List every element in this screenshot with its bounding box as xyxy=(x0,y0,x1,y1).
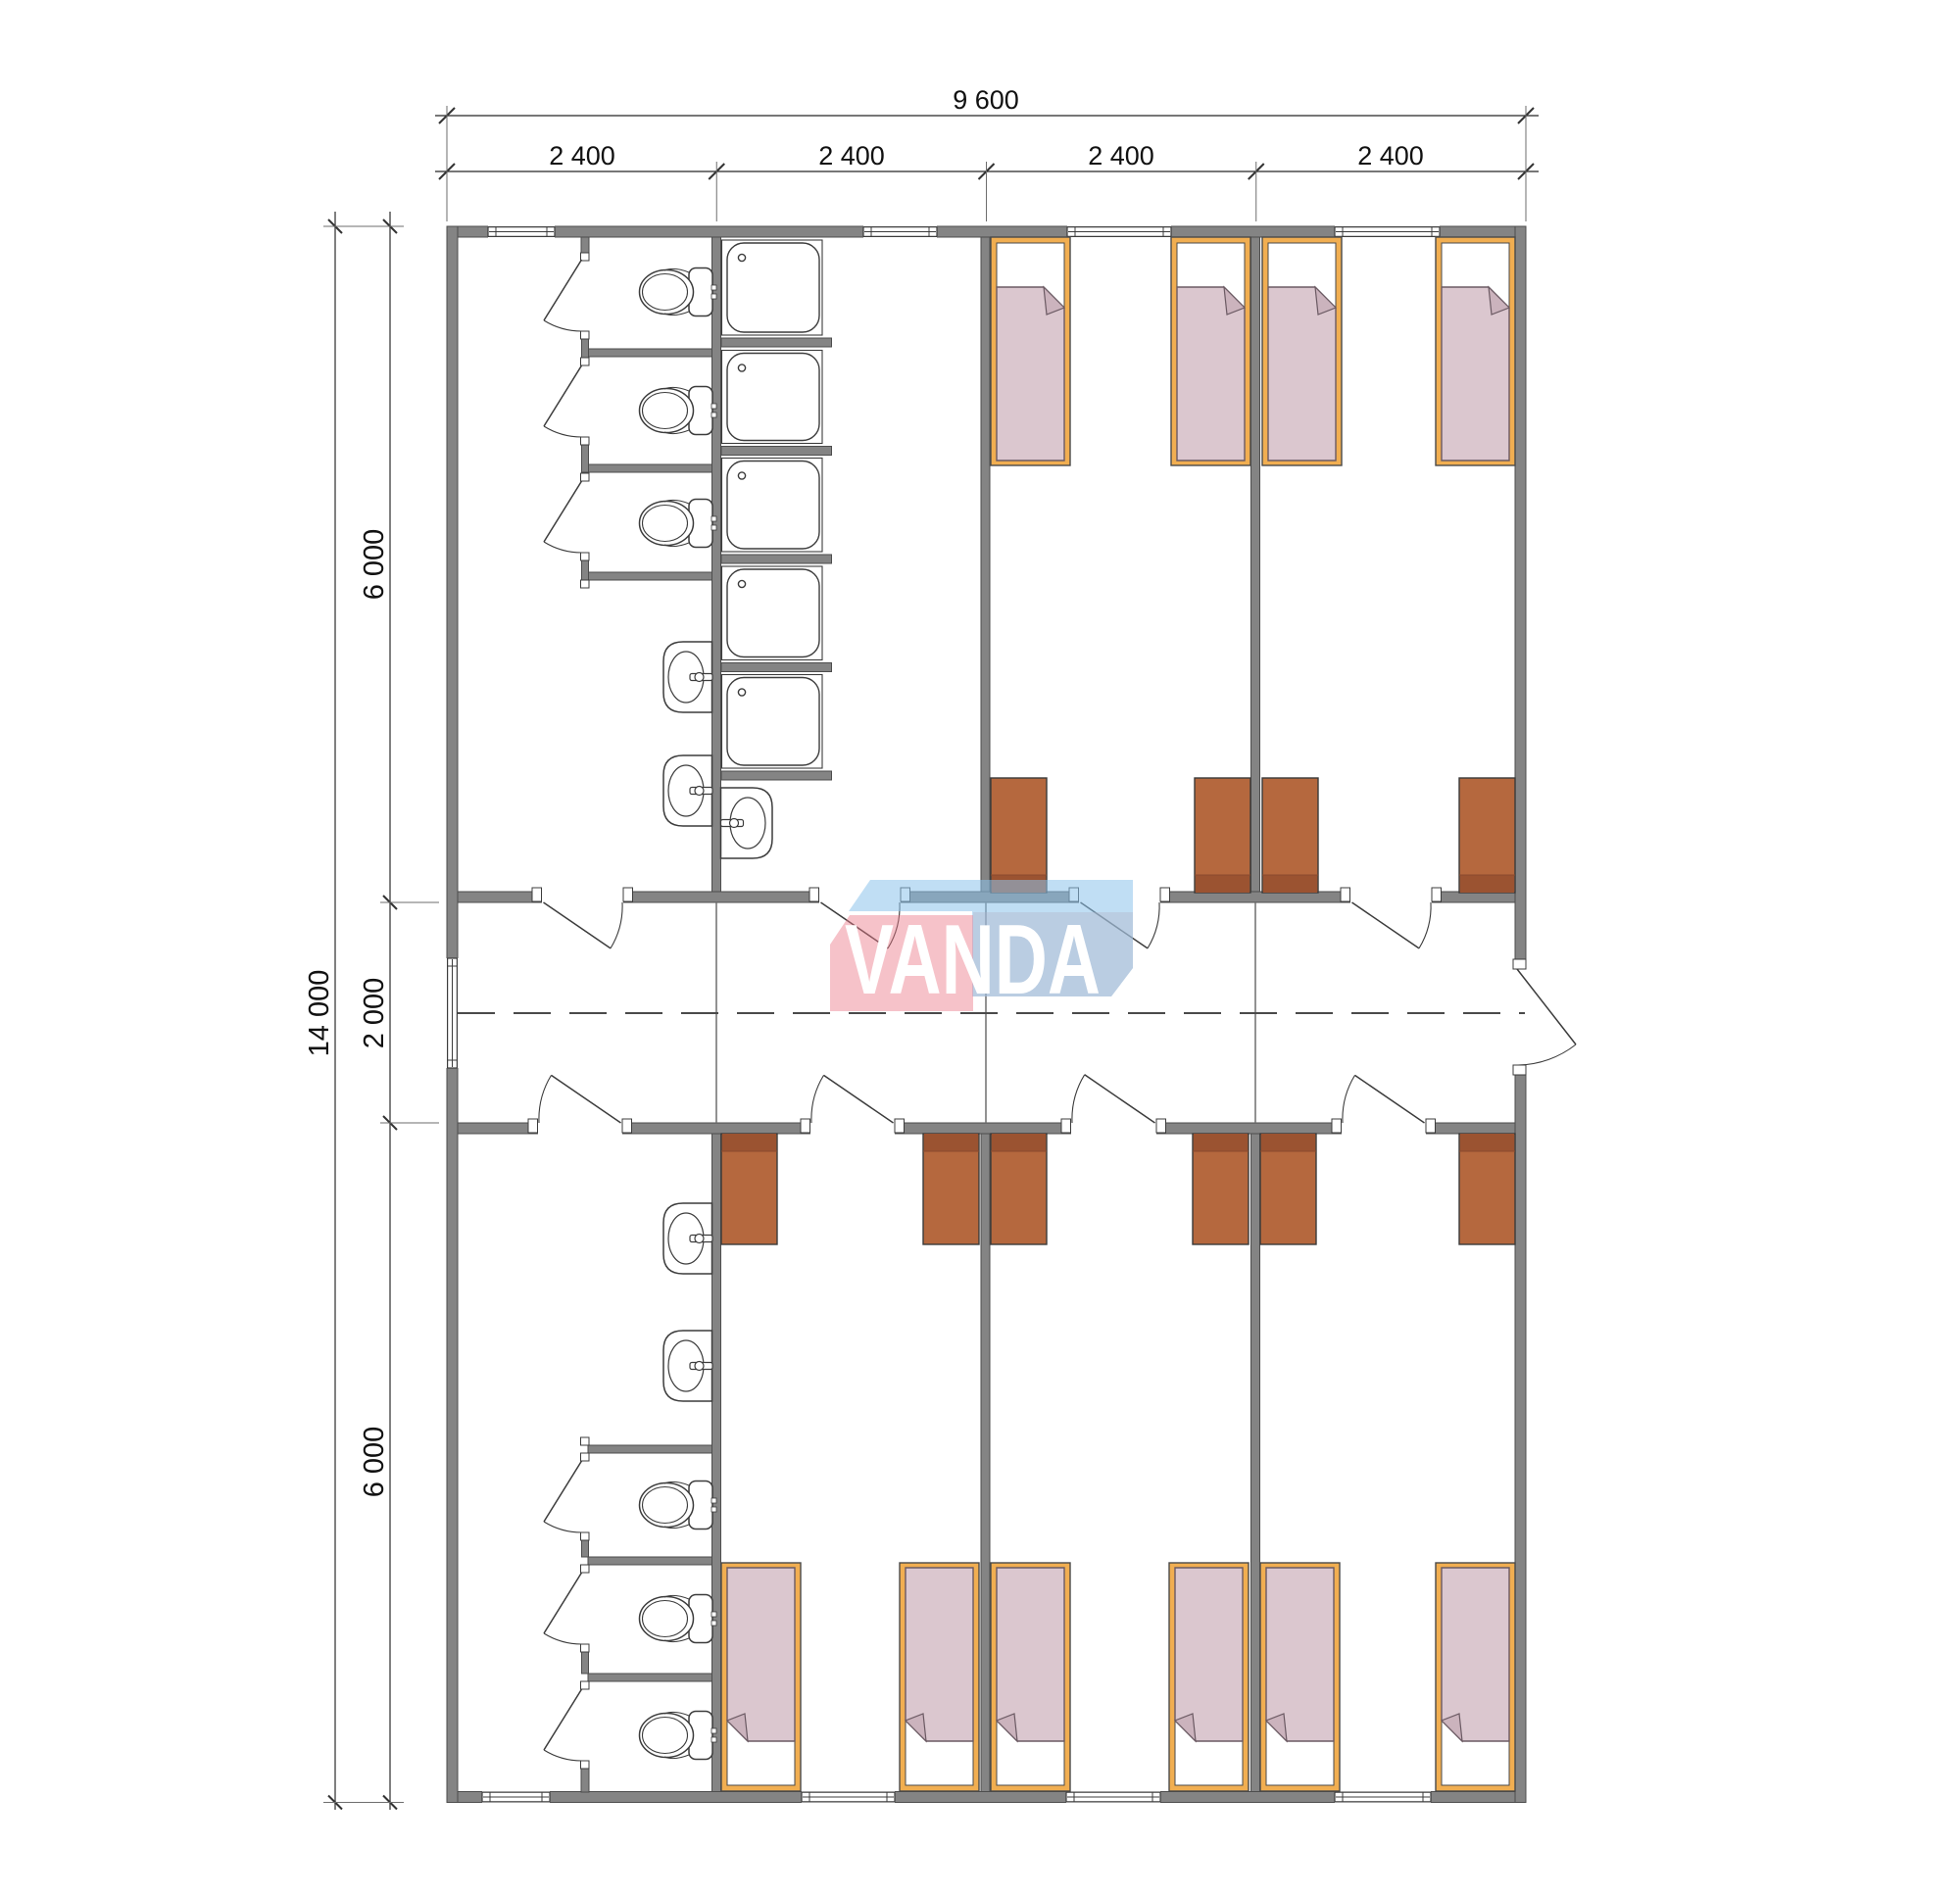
svg-text:2 400: 2 400 xyxy=(1357,141,1424,170)
svg-text:VANDA: VANDA xyxy=(845,905,1101,1015)
svg-text:2 400: 2 400 xyxy=(549,141,615,170)
svg-text:2 000: 2 000 xyxy=(359,978,390,1049)
svg-text:6 000: 6 000 xyxy=(359,529,390,601)
svg-text:6 000: 6 000 xyxy=(359,1427,390,1498)
svg-text:2 400: 2 400 xyxy=(818,141,885,170)
svg-text:2 400: 2 400 xyxy=(1088,141,1154,170)
svg-text:9 600: 9 600 xyxy=(953,85,1019,115)
svg-text:14 000: 14 000 xyxy=(304,970,335,1057)
